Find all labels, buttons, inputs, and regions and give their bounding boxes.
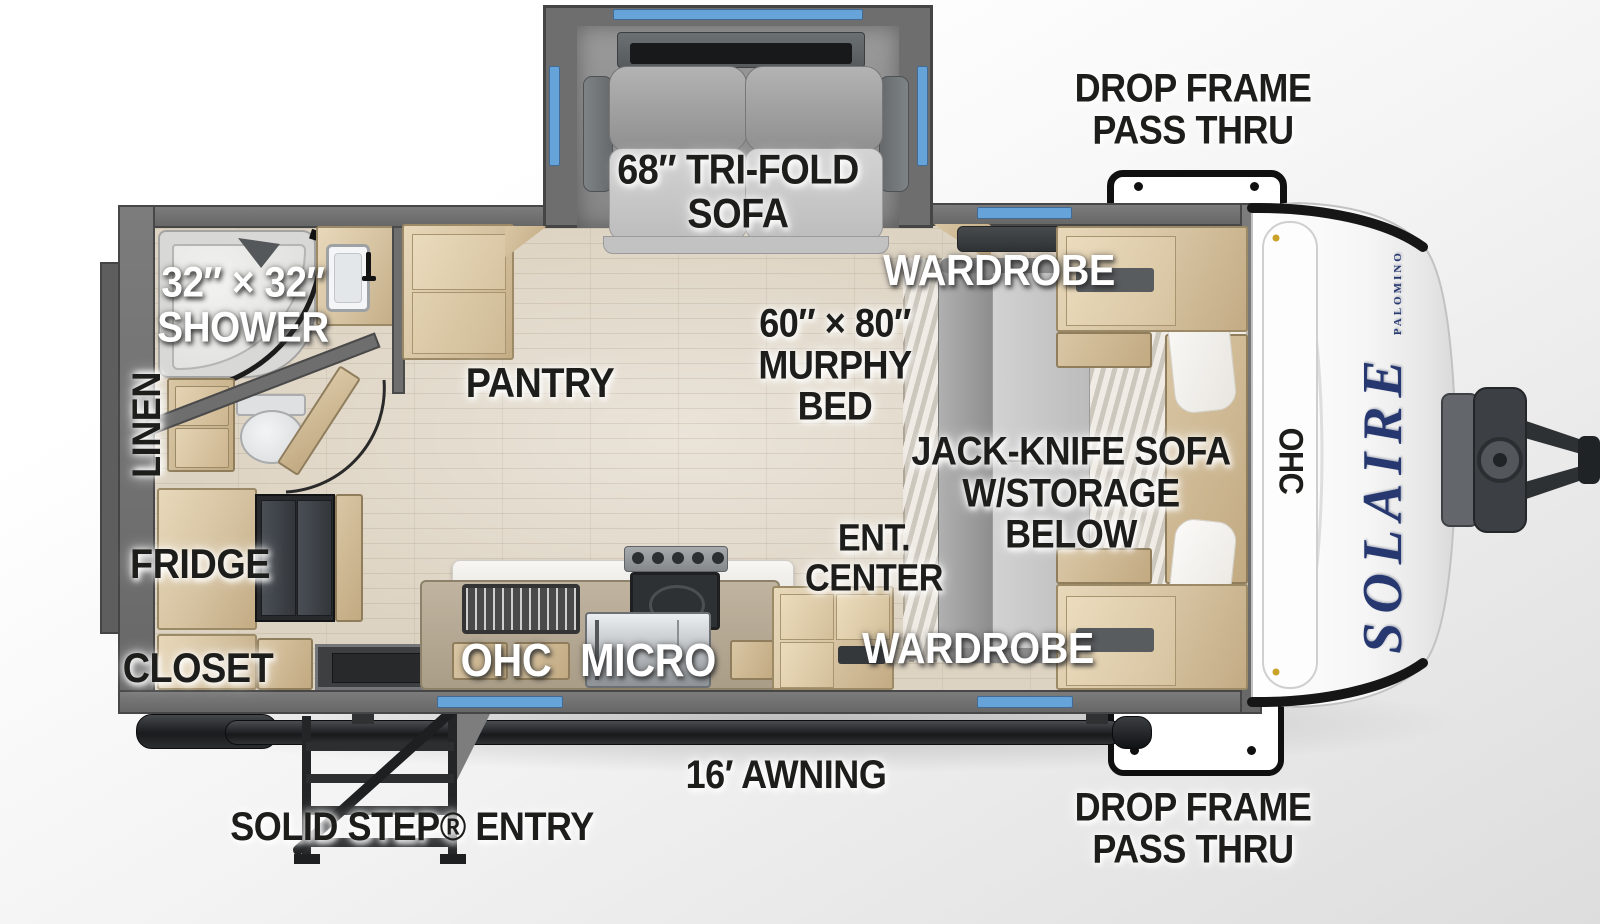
label-closet: CLOSET — [123, 646, 274, 690]
stove-knob — [672, 552, 684, 564]
sofa-back-cushion — [609, 66, 747, 152]
solaire-logo: SOLAIRE PALOMINO — [1351, 237, 1415, 667]
label-ohc-kitchen: OHC — [461, 637, 552, 685]
solaire-logo-text: SOLAIRE — [1351, 351, 1415, 654]
label-pantry: PANTRY — [466, 361, 615, 405]
floorplan-stage: DROP FRAME PASS THRU 68″ TRI-FOLD SOFA 3… — [0, 0, 1600, 924]
label-tri-fold-sofa: 68″ TRI-FOLD SOFA — [617, 147, 859, 234]
label-wardrobe-top: WARDROBE — [883, 248, 1115, 294]
label-solid-step-entry: SOLID STEP® ENTRY — [230, 807, 594, 849]
bottom-wall — [118, 690, 1262, 714]
solaire-logo-maker: PALOMINO — [1392, 250, 1404, 335]
stove-knob — [692, 552, 704, 564]
ent-tray — [780, 594, 834, 640]
hitch-mount-plate — [1442, 394, 1478, 526]
sink-faucet-handle — [362, 276, 376, 281]
sink-faucet — [366, 252, 371, 278]
bracket-rivet — [1247, 746, 1256, 755]
label-micro: MICRO — [580, 637, 716, 685]
stove-knob — [652, 552, 664, 564]
linen-drawer — [175, 428, 229, 468]
label-linen: LINEN — [127, 372, 169, 478]
rear-wall-cap — [100, 262, 120, 634]
label-drop-frame-bottom: DROP FRAME PASS THRU — [1075, 787, 1312, 870]
awning-tube-end-cap — [1112, 716, 1152, 749]
slide-window-left — [549, 66, 560, 166]
label-jack-knife-sofa: JACK-KNIFE SOFA W/STORAGE BELOW — [911, 432, 1230, 557]
window-strip — [437, 696, 563, 708]
hitch-assembly — [1430, 380, 1600, 540]
label-fridge: FRIDGE — [130, 542, 270, 586]
label-murphy-bed: 60″ × 80″ MURPHY BED — [758, 304, 911, 429]
pantry-face-panel — [412, 234, 506, 290]
fridge-door — [297, 500, 332, 616]
entry-steps — [280, 698, 490, 878]
label-ent-center: ENT. CENTER — [805, 519, 943, 598]
sink-basin — [334, 253, 362, 303]
nightstand-top — [1056, 332, 1152, 368]
bracket-rivet — [1134, 182, 1143, 191]
pantry-face-panel — [412, 292, 506, 354]
window-strip — [977, 696, 1073, 708]
step-support-wedge — [452, 714, 490, 790]
hitch-coupler — [1578, 436, 1600, 484]
counter-tray — [730, 640, 774, 680]
label-wardrobe-bottom: WARDROBE — [862, 626, 1094, 672]
sofa-back-cushion — [745, 66, 883, 152]
window-strip — [977, 207, 1072, 219]
sofa-armrest-right — [879, 76, 909, 192]
slide-window-top — [613, 9, 863, 20]
fridge-side-panel — [335, 494, 363, 622]
pantry-cabinet — [402, 224, 514, 360]
label-awning: 16′ AWNING — [686, 755, 887, 797]
label-shower: 32″ × 32″ SHOWER — [157, 260, 328, 349]
sofa-front-skirt — [603, 236, 889, 254]
kitchen-sink-drainer — [462, 584, 580, 634]
stove-knob — [712, 552, 724, 564]
ent-tray — [780, 642, 834, 688]
slide-tv-screen — [630, 43, 852, 64]
label-ohc-front: OHC — [1272, 428, 1307, 495]
slide-window-right — [917, 66, 928, 166]
stove-knob — [632, 552, 644, 564]
label-drop-frame-top: DROP FRAME PASS THRU — [1075, 68, 1312, 151]
